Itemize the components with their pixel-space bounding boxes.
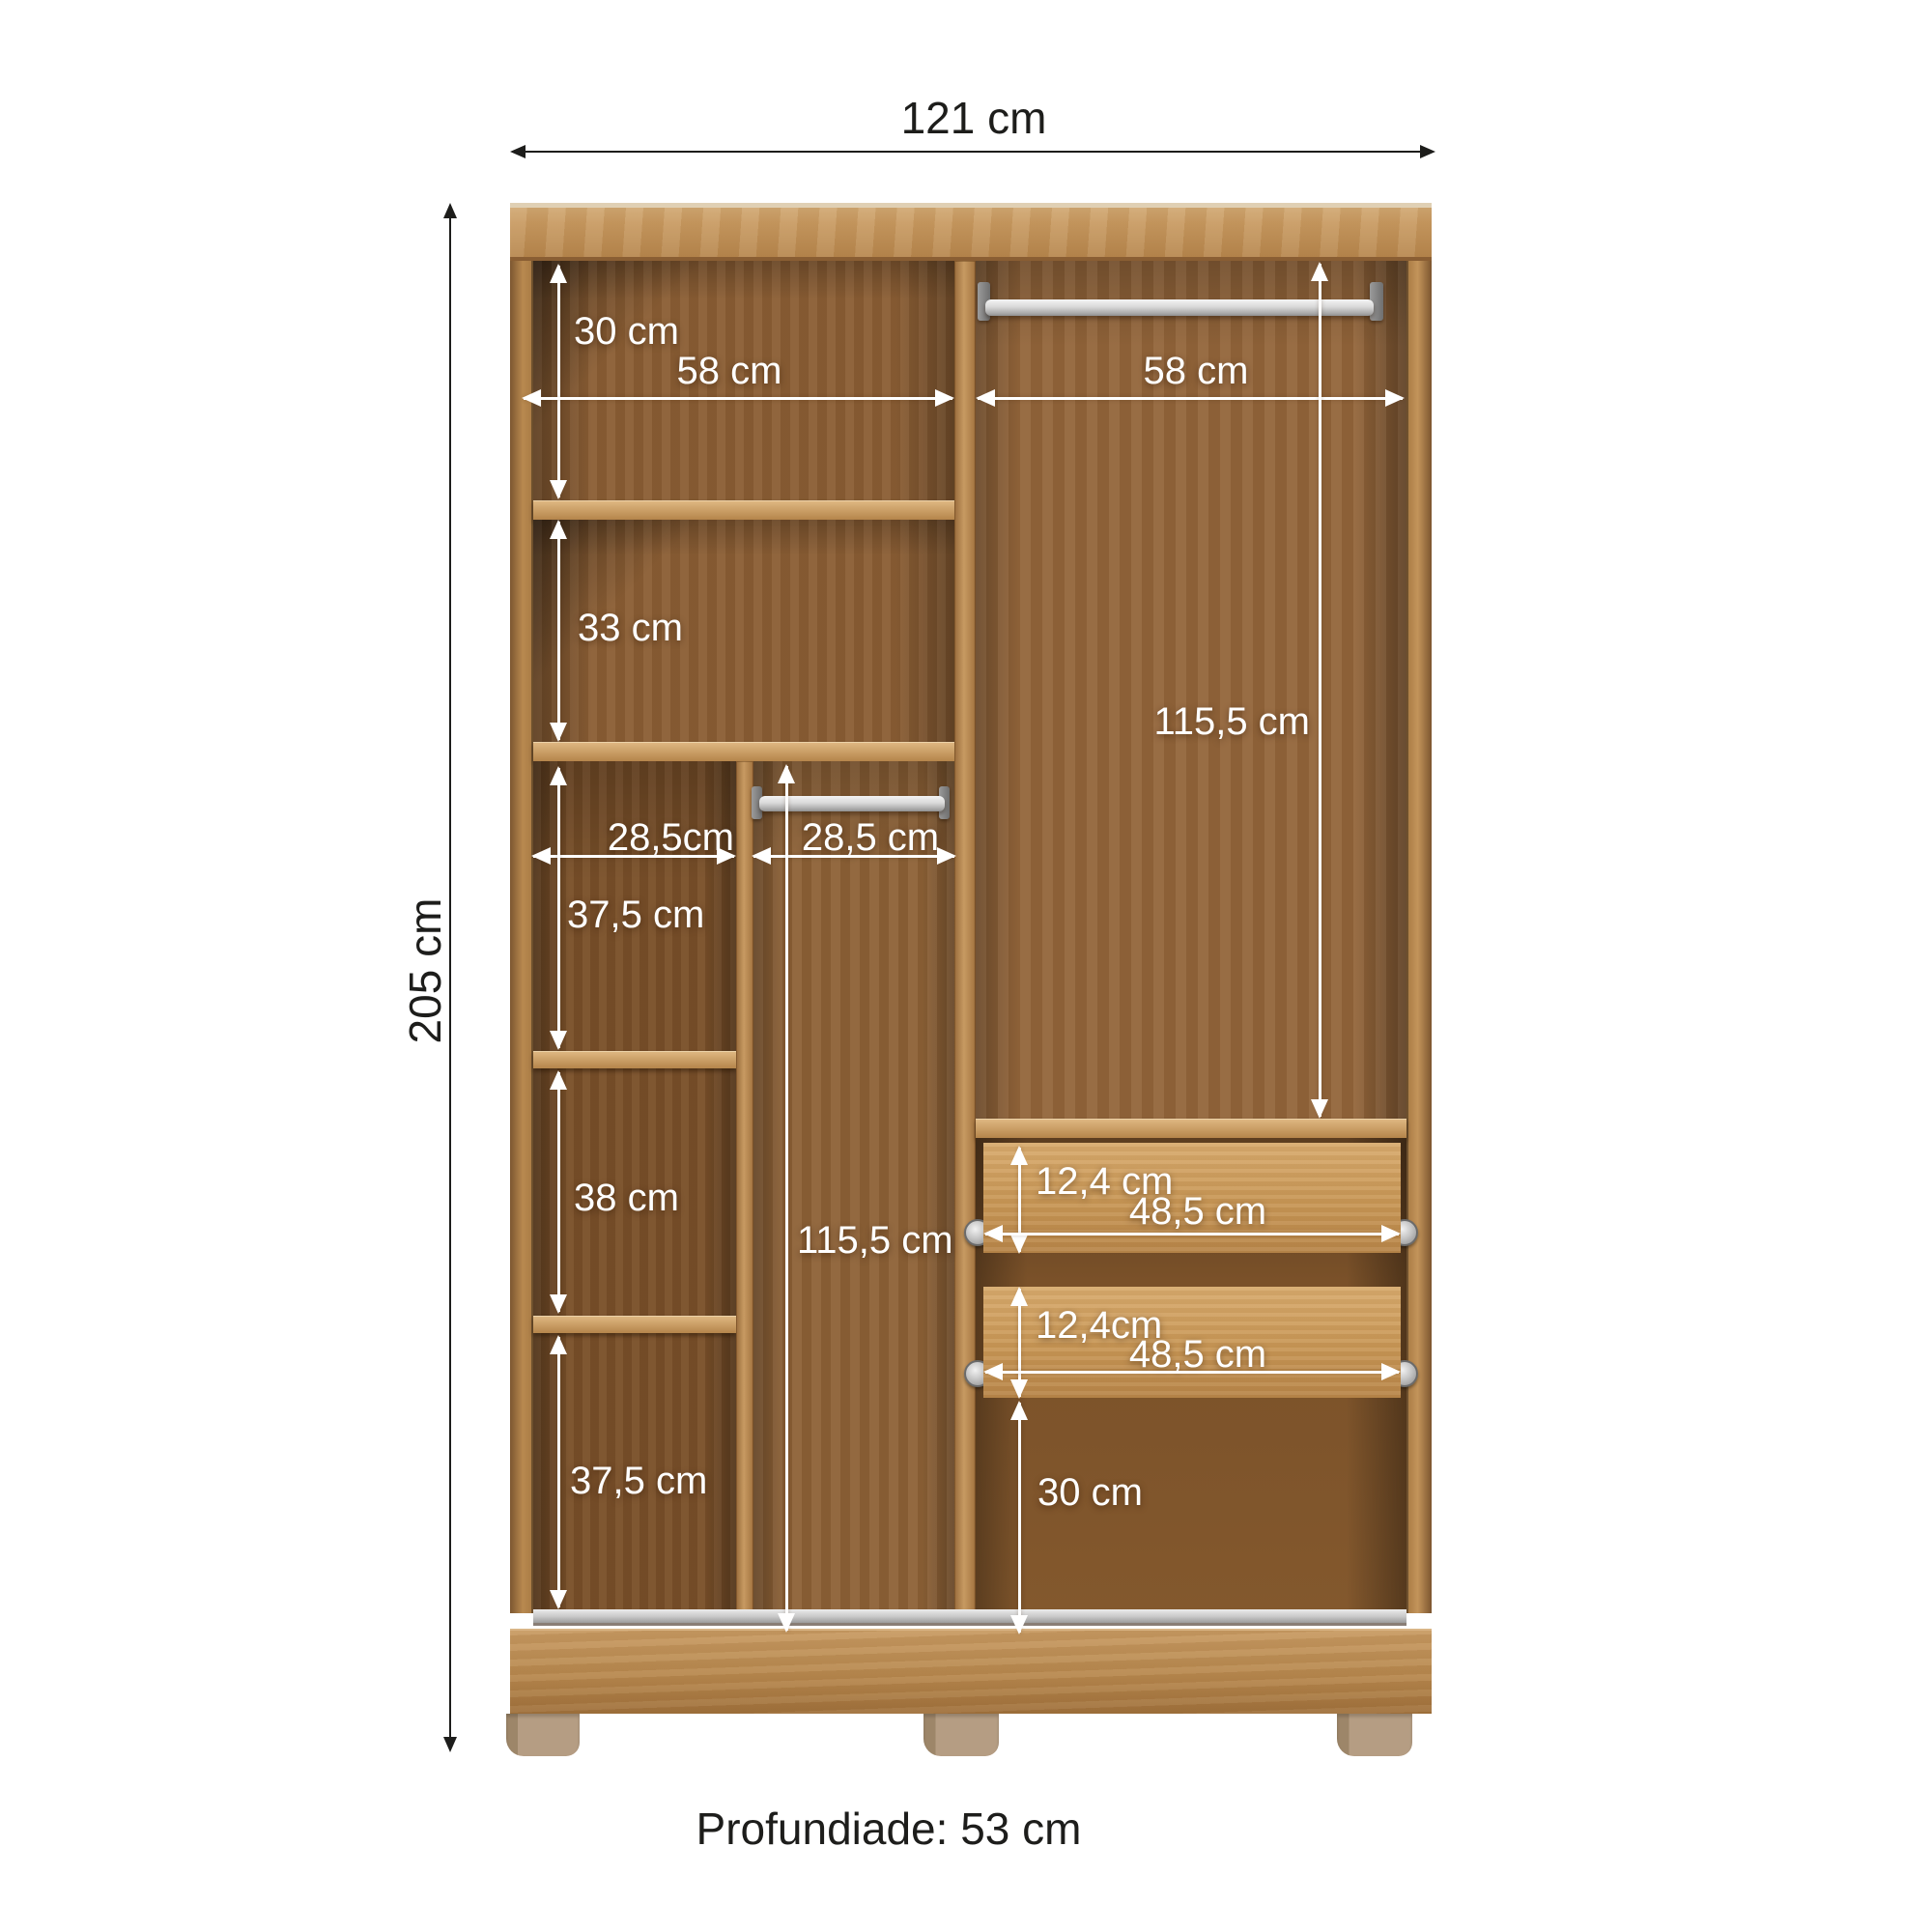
dim-label-38: 38 cm [574, 1174, 679, 1222]
overall-width-label: 121 cm [858, 94, 1090, 142]
middle-column-back [753, 761, 954, 1611]
dim-arrow-1155-right [1319, 264, 1321, 1117]
base-panel [510, 1629, 1432, 1714]
center-divider-panel [954, 261, 976, 1611]
dim-arrow-285-right [753, 855, 954, 858]
dim-arrow-485-drawer2 [985, 1371, 1399, 1374]
dim-label-1155-middle: 115,5 cm [797, 1216, 953, 1264]
dim-arrow-33cm [557, 522, 560, 740]
dim-arrow-485-drawer1 [985, 1233, 1399, 1236]
depth-label: Profundiade: 53 cm [647, 1804, 1130, 1853]
dim-label-33cm: 33 cm [578, 604, 683, 652]
dim-arrow-285-left [533, 855, 734, 858]
left-column-shelf-1 [533, 1051, 736, 1068]
dim-arrow-375-top [557, 768, 560, 1048]
right-shelf [976, 1119, 1406, 1138]
top-panel [510, 203, 1432, 261]
dim-arrow-58cm-left [524, 397, 952, 400]
sub-divider-panel [736, 761, 753, 1611]
dim-arrow-30cm-top [557, 266, 560, 497]
dim-arrow-124-drawer1 [1018, 1148, 1021, 1252]
dim-arrow-124-drawer2 [1018, 1289, 1021, 1397]
right-side-panel [1406, 261, 1432, 1613]
dim-arrow-30cm-bottom [1018, 1403, 1021, 1633]
center-foot [923, 1714, 999, 1756]
left-column-shelf-2 [533, 1316, 736, 1333]
dim-arrow-58cm-right [978, 397, 1403, 400]
dim-arrow-375-bottom [557, 1337, 560, 1607]
wardrobe-dimension-diagram: 121 cm 205 cm Profundiade: 53 cm 30 cm 5… [0, 0, 1932, 1932]
overall-height-arrow [449, 205, 451, 1750]
dim-label-58cm-left: 58 cm [623, 347, 836, 395]
dim-label-58cm-right: 58 cm [1090, 347, 1302, 395]
dim-label-375-bottom: 37,5 cm [570, 1457, 707, 1505]
left-shelf-2 [533, 742, 954, 761]
bottom-door-track [533, 1609, 1406, 1623]
right-foot [1337, 1714, 1412, 1756]
left-side-panel [510, 261, 533, 1613]
left-shelf-1 [533, 500, 954, 520]
overall-height-label: 205 cm [401, 855, 449, 1087]
overall-width-arrow [512, 151, 1434, 153]
dim-label-375-top: 37,5 cm [567, 891, 704, 939]
dim-label-30cm-bottom: 30 cm [1037, 1468, 1143, 1517]
right-hanging-rod [985, 299, 1374, 316]
dim-arrow-1155-middle [785, 766, 788, 1631]
dim-arrow-38 [557, 1072, 560, 1312]
dim-label-1155-right: 115,5 cm [1117, 697, 1310, 746]
dim-label-485-drawer1: 48,5 cm [1092, 1187, 1304, 1236]
left-foot [506, 1714, 580, 1756]
